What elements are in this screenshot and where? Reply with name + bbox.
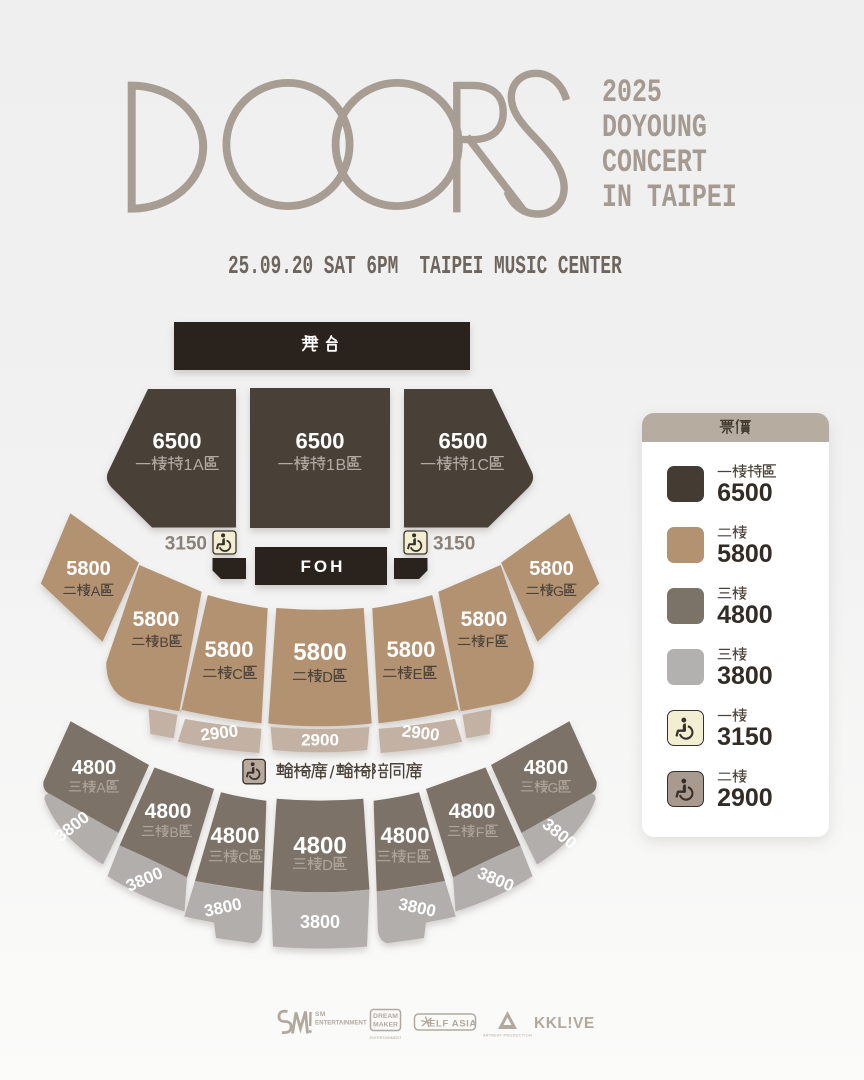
svg-text:4800: 4800 [524,757,569,779]
svg-text:MAKER: MAKER [373,1022,398,1029]
svg-text:5800: 5800 [133,608,180,631]
svg-text:1: 1 [326,457,335,474]
svg-text:F: F [476,824,485,840]
svg-text:5800: 5800 [205,637,254,662]
svg-text:B: B [159,634,168,650]
svg-text:5800: 5800 [293,639,346,666]
svg-text:G: G [548,780,559,796]
svg-text:3150: 3150 [433,534,475,555]
svg-text:4800: 4800 [72,757,117,779]
svg-text:6500: 6500 [439,429,488,454]
svg-text:ENTERTAINMENT: ENTERTAINMENT [370,1036,403,1040]
svg-text:1: 1 [468,457,477,474]
svg-text:D: D [322,857,333,874]
svg-text:E: E [406,850,416,867]
svg-text:ENTERTAINMENT: ENTERTAINMENT [315,1020,367,1027]
svg-text:D: D [322,669,333,686]
svg-text:C: C [238,850,249,867]
svg-text:SM: SM [315,1011,326,1018]
svg-text:B: B [335,457,346,474]
svg-text:ELF ASIA: ELF ASIA [429,1019,477,1030]
svg-text:A: A [91,583,101,599]
svg-text:5800: 5800 [387,637,436,662]
svg-text:4800: 4800 [293,833,346,860]
svg-text:A: A [193,457,204,474]
svg-text:E: E [412,666,422,683]
svg-text:G: G [553,583,564,599]
svg-text:1: 1 [183,457,192,474]
svg-text:4800: 4800 [211,823,260,848]
svg-text:ARTBEAT PRODUCTION: ARTBEAT PRODUCTION [483,1034,532,1038]
svg-text:F: F [486,634,495,650]
svg-text:4800: 4800 [145,800,192,823]
svg-text:4800: 4800 [449,800,496,823]
svg-text:4800: 4800 [381,823,430,848]
svg-text:DREAM: DREAM [373,1013,398,1020]
svg-text:6500: 6500 [153,429,202,454]
svg-text:/: / [330,763,335,783]
svg-text:B: B [169,824,178,840]
svg-text:5800: 5800 [529,558,574,580]
svg-text:3150: 3150 [165,534,207,555]
svg-text:5800: 5800 [66,558,111,580]
svg-text:5800: 5800 [461,608,508,631]
svg-text:3800: 3800 [300,912,340,932]
svg-text:6500: 6500 [296,429,345,454]
svg-text:A: A [96,780,106,796]
svg-text:FOH: FOH [301,557,346,576]
svg-text:C: C [478,457,490,474]
svg-text:2900: 2900 [301,731,339,750]
svg-text:C: C [232,666,243,683]
svg-text:KKL!VE: KKL!VE [534,1015,595,1032]
